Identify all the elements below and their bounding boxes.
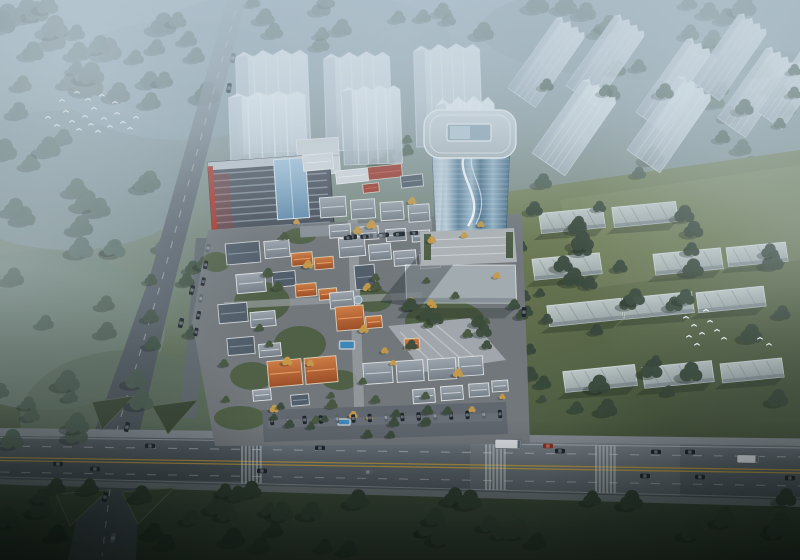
fountain (354, 296, 362, 304)
village-building (366, 315, 383, 328)
swimming-pool (340, 341, 355, 349)
village-building (335, 305, 365, 331)
village-building (304, 356, 338, 385)
parked-car (481, 410, 486, 419)
parked-car (465, 411, 470, 420)
parked-car (433, 412, 438, 421)
atmosphere (0, 0, 800, 560)
village-building (291, 394, 310, 407)
village-building (469, 383, 490, 397)
lawn (274, 326, 326, 362)
masterplan-render (0, 0, 800, 560)
village-building (492, 380, 509, 392)
parked-car (498, 410, 503, 419)
village-building (253, 389, 272, 402)
village-building (441, 385, 464, 401)
village-building (396, 360, 424, 383)
aerial-render-stage (0, 0, 800, 560)
car (521, 307, 526, 317)
village-building (295, 283, 317, 298)
